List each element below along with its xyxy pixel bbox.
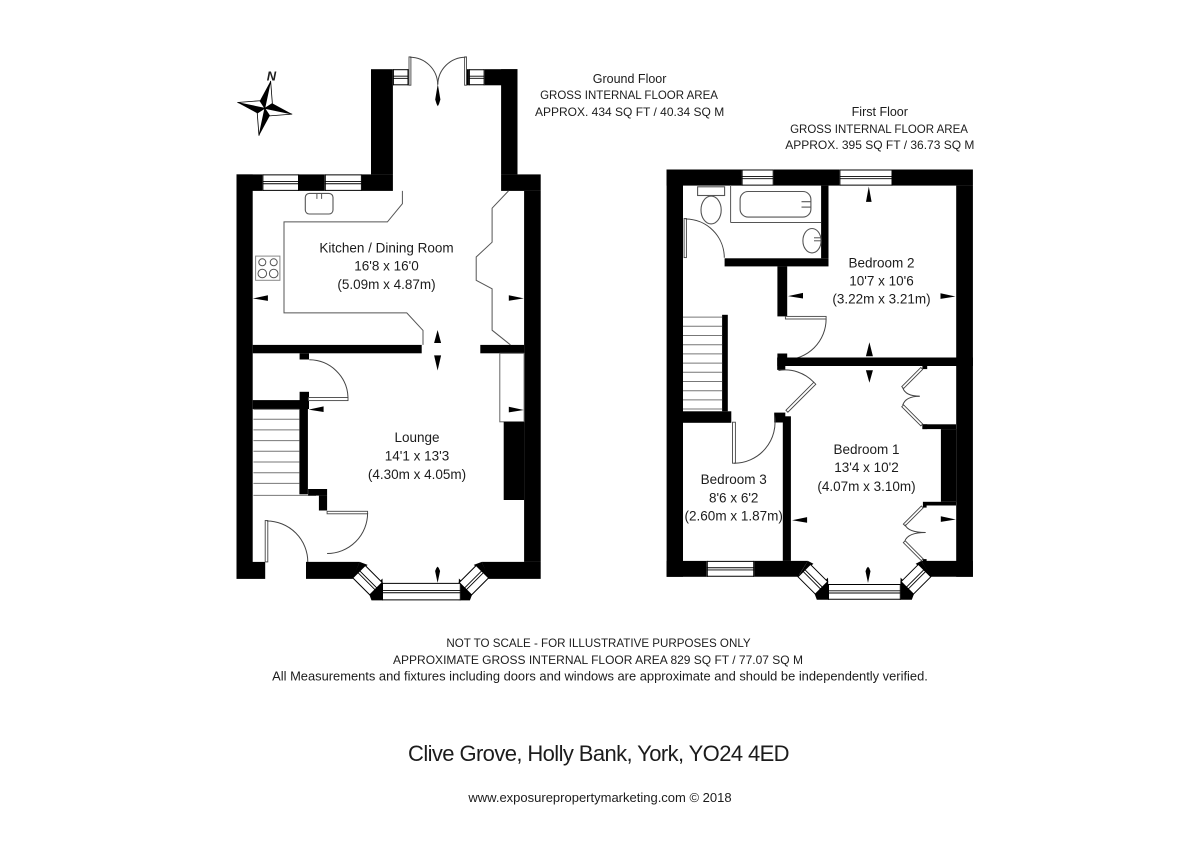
svg-text:Bedroom 2: Bedroom 2 [848, 256, 914, 271]
svg-text:Kitchen / Dining Room: Kitchen / Dining Room [319, 241, 453, 256]
svg-text:NOT TO SCALE - FOR ILLUSTRATIV: NOT TO SCALE - FOR ILLUSTRATIVE PURPOSES… [446, 637, 751, 650]
svg-text:www.exposurepropertymarketing.: www.exposurepropertymarketing.com © 2018 [467, 790, 731, 805]
svg-text:APPROX. 434 SQ FT / 40.34 SQ M: APPROX. 434 SQ FT / 40.34 SQ M [535, 105, 724, 119]
svg-text:Clive Grove, Holly Bank, York,: Clive Grove, Holly Bank, York, YO24 4ED [408, 741, 789, 766]
svg-text:Bedroom 1: Bedroom 1 [833, 442, 899, 457]
svg-text:16'8 x 16'0: 16'8 x 16'0 [354, 259, 418, 274]
svg-text:8'6 x 6'2: 8'6 x 6'2 [709, 490, 758, 505]
svg-text:10'7 x 10'6: 10'7 x 10'6 [849, 274, 913, 289]
svg-text:APPROX. 395 SQ FT / 36.73 SQ M: APPROX. 395 SQ FT / 36.73 SQ M [785, 138, 974, 152]
svg-text:(4.30m x 4.05m): (4.30m x 4.05m) [368, 467, 466, 482]
svg-text:(3.22m x 3.21m): (3.22m x 3.21m) [832, 292, 930, 307]
svg-text:(5.09m x 4.87m): (5.09m x 4.87m) [337, 277, 435, 292]
svg-text:GROSS INTERNAL FLOOR AREA: GROSS INTERNAL FLOOR AREA [540, 90, 718, 102]
svg-text:13'4 x 10'2: 13'4 x 10'2 [834, 460, 898, 475]
svg-text:(2.60m x 1.87m): (2.60m x 1.87m) [685, 508, 783, 523]
svg-text:Ground Floor: Ground Floor [593, 72, 667, 86]
svg-text:(4.07m x 3.10m): (4.07m x 3.10m) [817, 479, 915, 494]
svg-text:Bedroom 3: Bedroom 3 [701, 472, 767, 487]
svg-text:GROSS INTERNAL FLOOR AREA: GROSS INTERNAL FLOOR AREA [790, 124, 968, 136]
svg-text:N: N [267, 69, 277, 84]
svg-text:APPROXIMATE GROSS INTERNAL FLO: APPROXIMATE GROSS INTERNAL FLOOR AREA 82… [393, 653, 803, 667]
svg-text:First Floor: First Floor [852, 105, 908, 119]
svg-text:14'1 x 13'3: 14'1 x 13'3 [385, 449, 449, 464]
svg-text:Lounge: Lounge [394, 430, 439, 445]
svg-text:All Measurements and fixtures: All Measurements and fixtures including … [272, 669, 928, 684]
